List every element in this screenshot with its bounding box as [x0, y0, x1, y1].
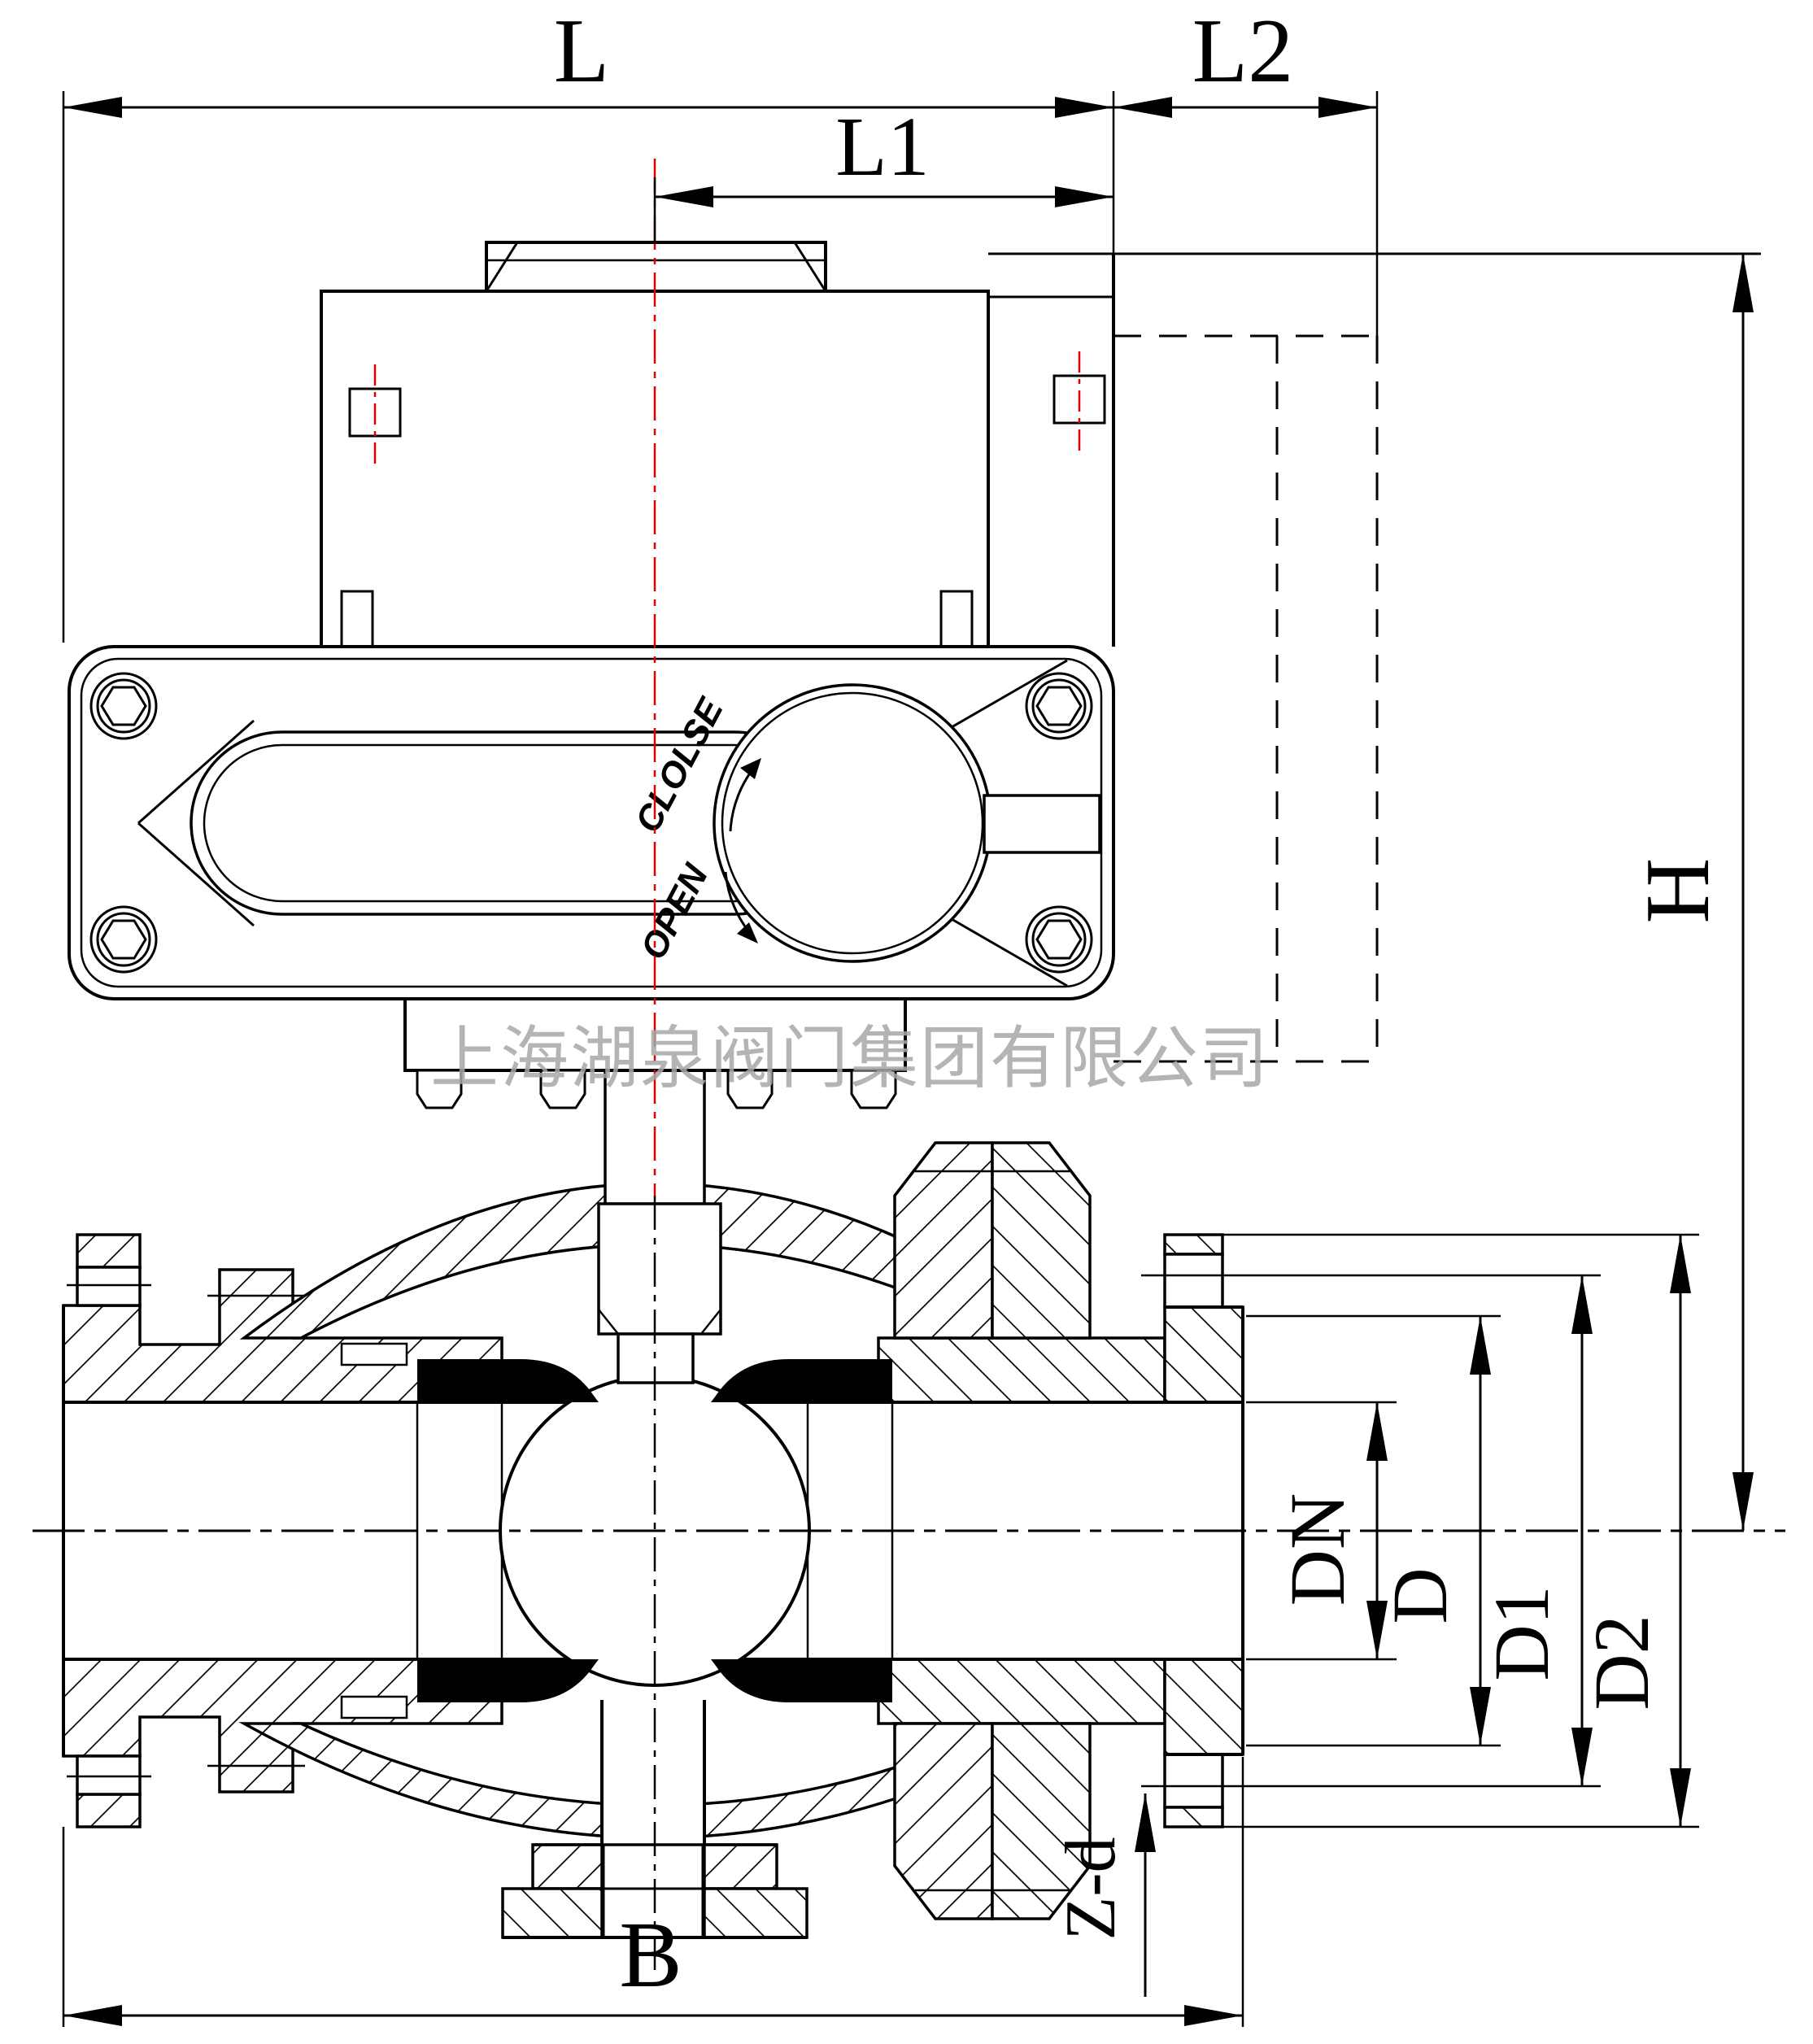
right-bolt-tab-upper [1165, 1235, 1222, 1254]
right-body-band-lower [878, 1659, 1165, 1724]
valve-sectional-drawing: CLOLSE OPEN [0, 0, 1813, 2044]
left-bolt-tab-upper [77, 1235, 140, 1267]
right-socket-upper [1165, 1307, 1243, 1402]
left-bolt-hole-lower [77, 1756, 140, 1794]
actuator-cap [486, 242, 826, 291]
dim-label-DN: DN [1274, 1493, 1361, 1606]
left-bolt-hole-upper [77, 1267, 140, 1305]
gasket-slot-lower [342, 1697, 407, 1718]
gasket-slot-upper [342, 1344, 407, 1365]
seat-lower-right [711, 1659, 892, 1702]
right-bolt-hole-lower [1165, 1754, 1222, 1807]
knob-handle [984, 795, 1100, 852]
company-watermark: 上海湖泉阀门集团有限公司 [430, 1018, 1270, 1098]
drain-plate2-right [704, 1889, 807, 1937]
right-bolt-tab-lower [1165, 1807, 1222, 1827]
dim-label-B: B [619, 1903, 682, 2007]
left-bolt-tab-lower [77, 1794, 140, 1827]
dim-label-H: H [1628, 858, 1728, 924]
seat-upper-right [711, 1359, 892, 1402]
right-bolt-hole-upper [1165, 1254, 1222, 1307]
dim-label-D2: D2 [1578, 1615, 1665, 1710]
dim-label-L2: L2 [1192, 1, 1293, 102]
valve-stem [599, 1070, 721, 1383]
drain-plate2-left [503, 1889, 602, 1937]
drain-plate1-left [533, 1845, 602, 1889]
dim-label-L1: L1 [835, 100, 930, 194]
hidden-outline-box [1114, 336, 1377, 1061]
dim-label-D: D [1376, 1567, 1463, 1623]
right-socket-lower [1165, 1659, 1243, 1754]
manual-override-knob [714, 685, 991, 961]
seat-upper-left [417, 1359, 599, 1402]
drain-plate1-right [704, 1845, 777, 1889]
dim-label-Zd: Z-d [1052, 1837, 1131, 1940]
seat-lower-left [417, 1659, 599, 1702]
right-body-band-upper [878, 1338, 1165, 1402]
dim-label-D1: D1 [1478, 1585, 1565, 1680]
drawing-canvas: CLOLSE OPEN [0, 0, 1813, 2044]
dim-label-L: L [554, 1, 609, 102]
stem-collar [599, 1204, 721, 1334]
electric-actuator [69, 242, 1761, 1108]
